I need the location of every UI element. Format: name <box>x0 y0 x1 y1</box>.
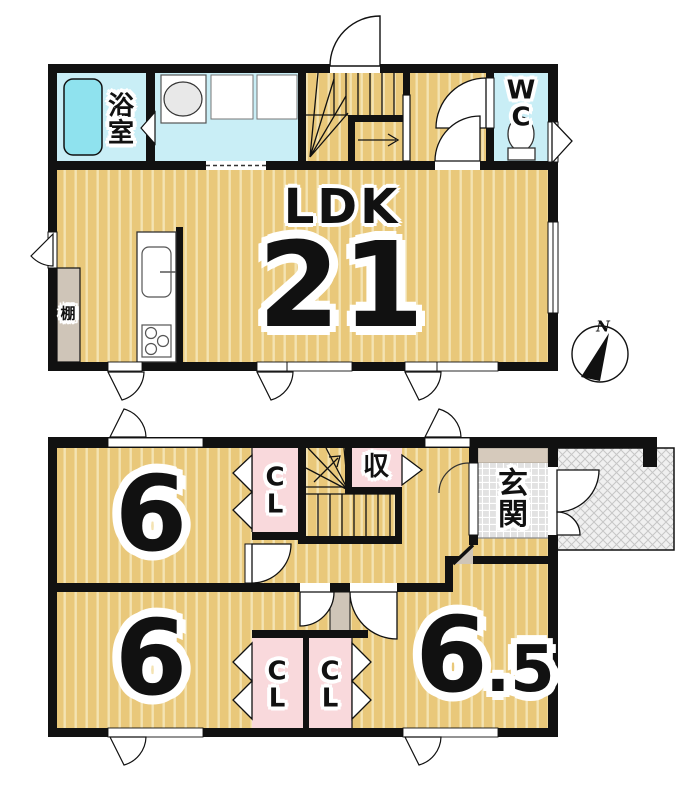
stair-hall-opening <box>403 95 410 161</box>
entrance-step <box>478 448 548 463</box>
washroom-fixtures <box>161 75 297 123</box>
closet-bottom-left-label: CL <box>262 658 292 711</box>
bedroom-right-label: 6.5 <box>415 603 554 707</box>
shelf-label: 棚 <box>60 307 75 322</box>
bathtub <box>64 79 102 155</box>
wc-side-window <box>552 120 572 163</box>
bathroom-label: 浴室 <box>106 93 136 146</box>
bedroom-right-suffix: .5 <box>486 633 555 707</box>
floor-plan: LDK 21 浴室 WC 棚 6 6 6.5 CL CL CL 収 玄関 N <box>0 0 684 800</box>
bedroom-right-main: 6 <box>415 594 485 716</box>
bedroom-top-label: 6 <box>115 462 185 566</box>
storage-label: 収 <box>363 454 389 480</box>
entrance-hall-opening <box>469 463 478 535</box>
closet-top-label: CL <box>260 464 290 517</box>
bedroom-bottom-label: 6 <box>115 606 185 710</box>
kitchen-wall <box>176 227 183 362</box>
compass-north-label: N <box>596 320 610 335</box>
closet-bottom-right-label: CL <box>315 658 345 711</box>
entrance-label: 玄関 <box>496 469 531 530</box>
kitchen-counter <box>137 232 176 362</box>
ldk-size-label: 21 <box>258 226 426 344</box>
left-casement-window <box>31 234 53 266</box>
balcony-door-2f <box>330 16 380 66</box>
wc-label: WC <box>506 77 536 130</box>
